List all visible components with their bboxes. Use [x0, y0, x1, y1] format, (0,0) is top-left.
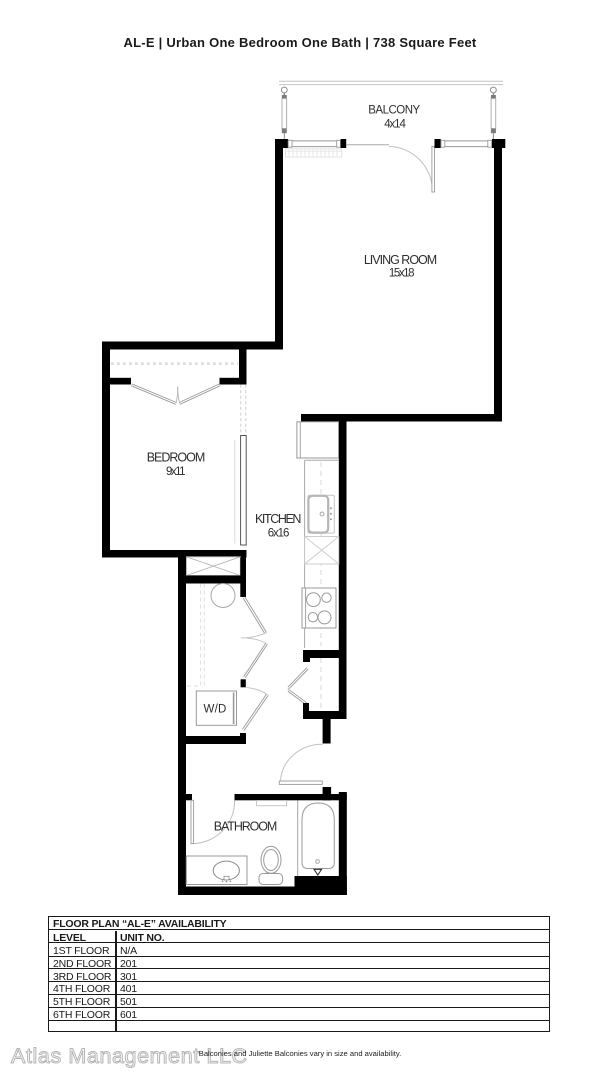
svg-text:4x14: 4x14 — [384, 119, 406, 131]
svg-text:6x16: 6x16 — [268, 527, 289, 539]
svg-text:W/D: W/D — [204, 704, 227, 716]
svg-text:BALCONY: BALCONY — [368, 104, 420, 116]
svg-text:LIVING ROOM: LIVING ROOM — [364, 253, 437, 267]
svg-text:15x18: 15x18 — [389, 268, 414, 280]
svg-text:BATHROOM: BATHROOM — [214, 819, 277, 833]
svg-text:BEDROOM: BEDROOM — [147, 450, 205, 464]
svg-text:9x11: 9x11 — [166, 466, 185, 478]
svg-text:KITCHEN: KITCHEN — [255, 512, 301, 526]
